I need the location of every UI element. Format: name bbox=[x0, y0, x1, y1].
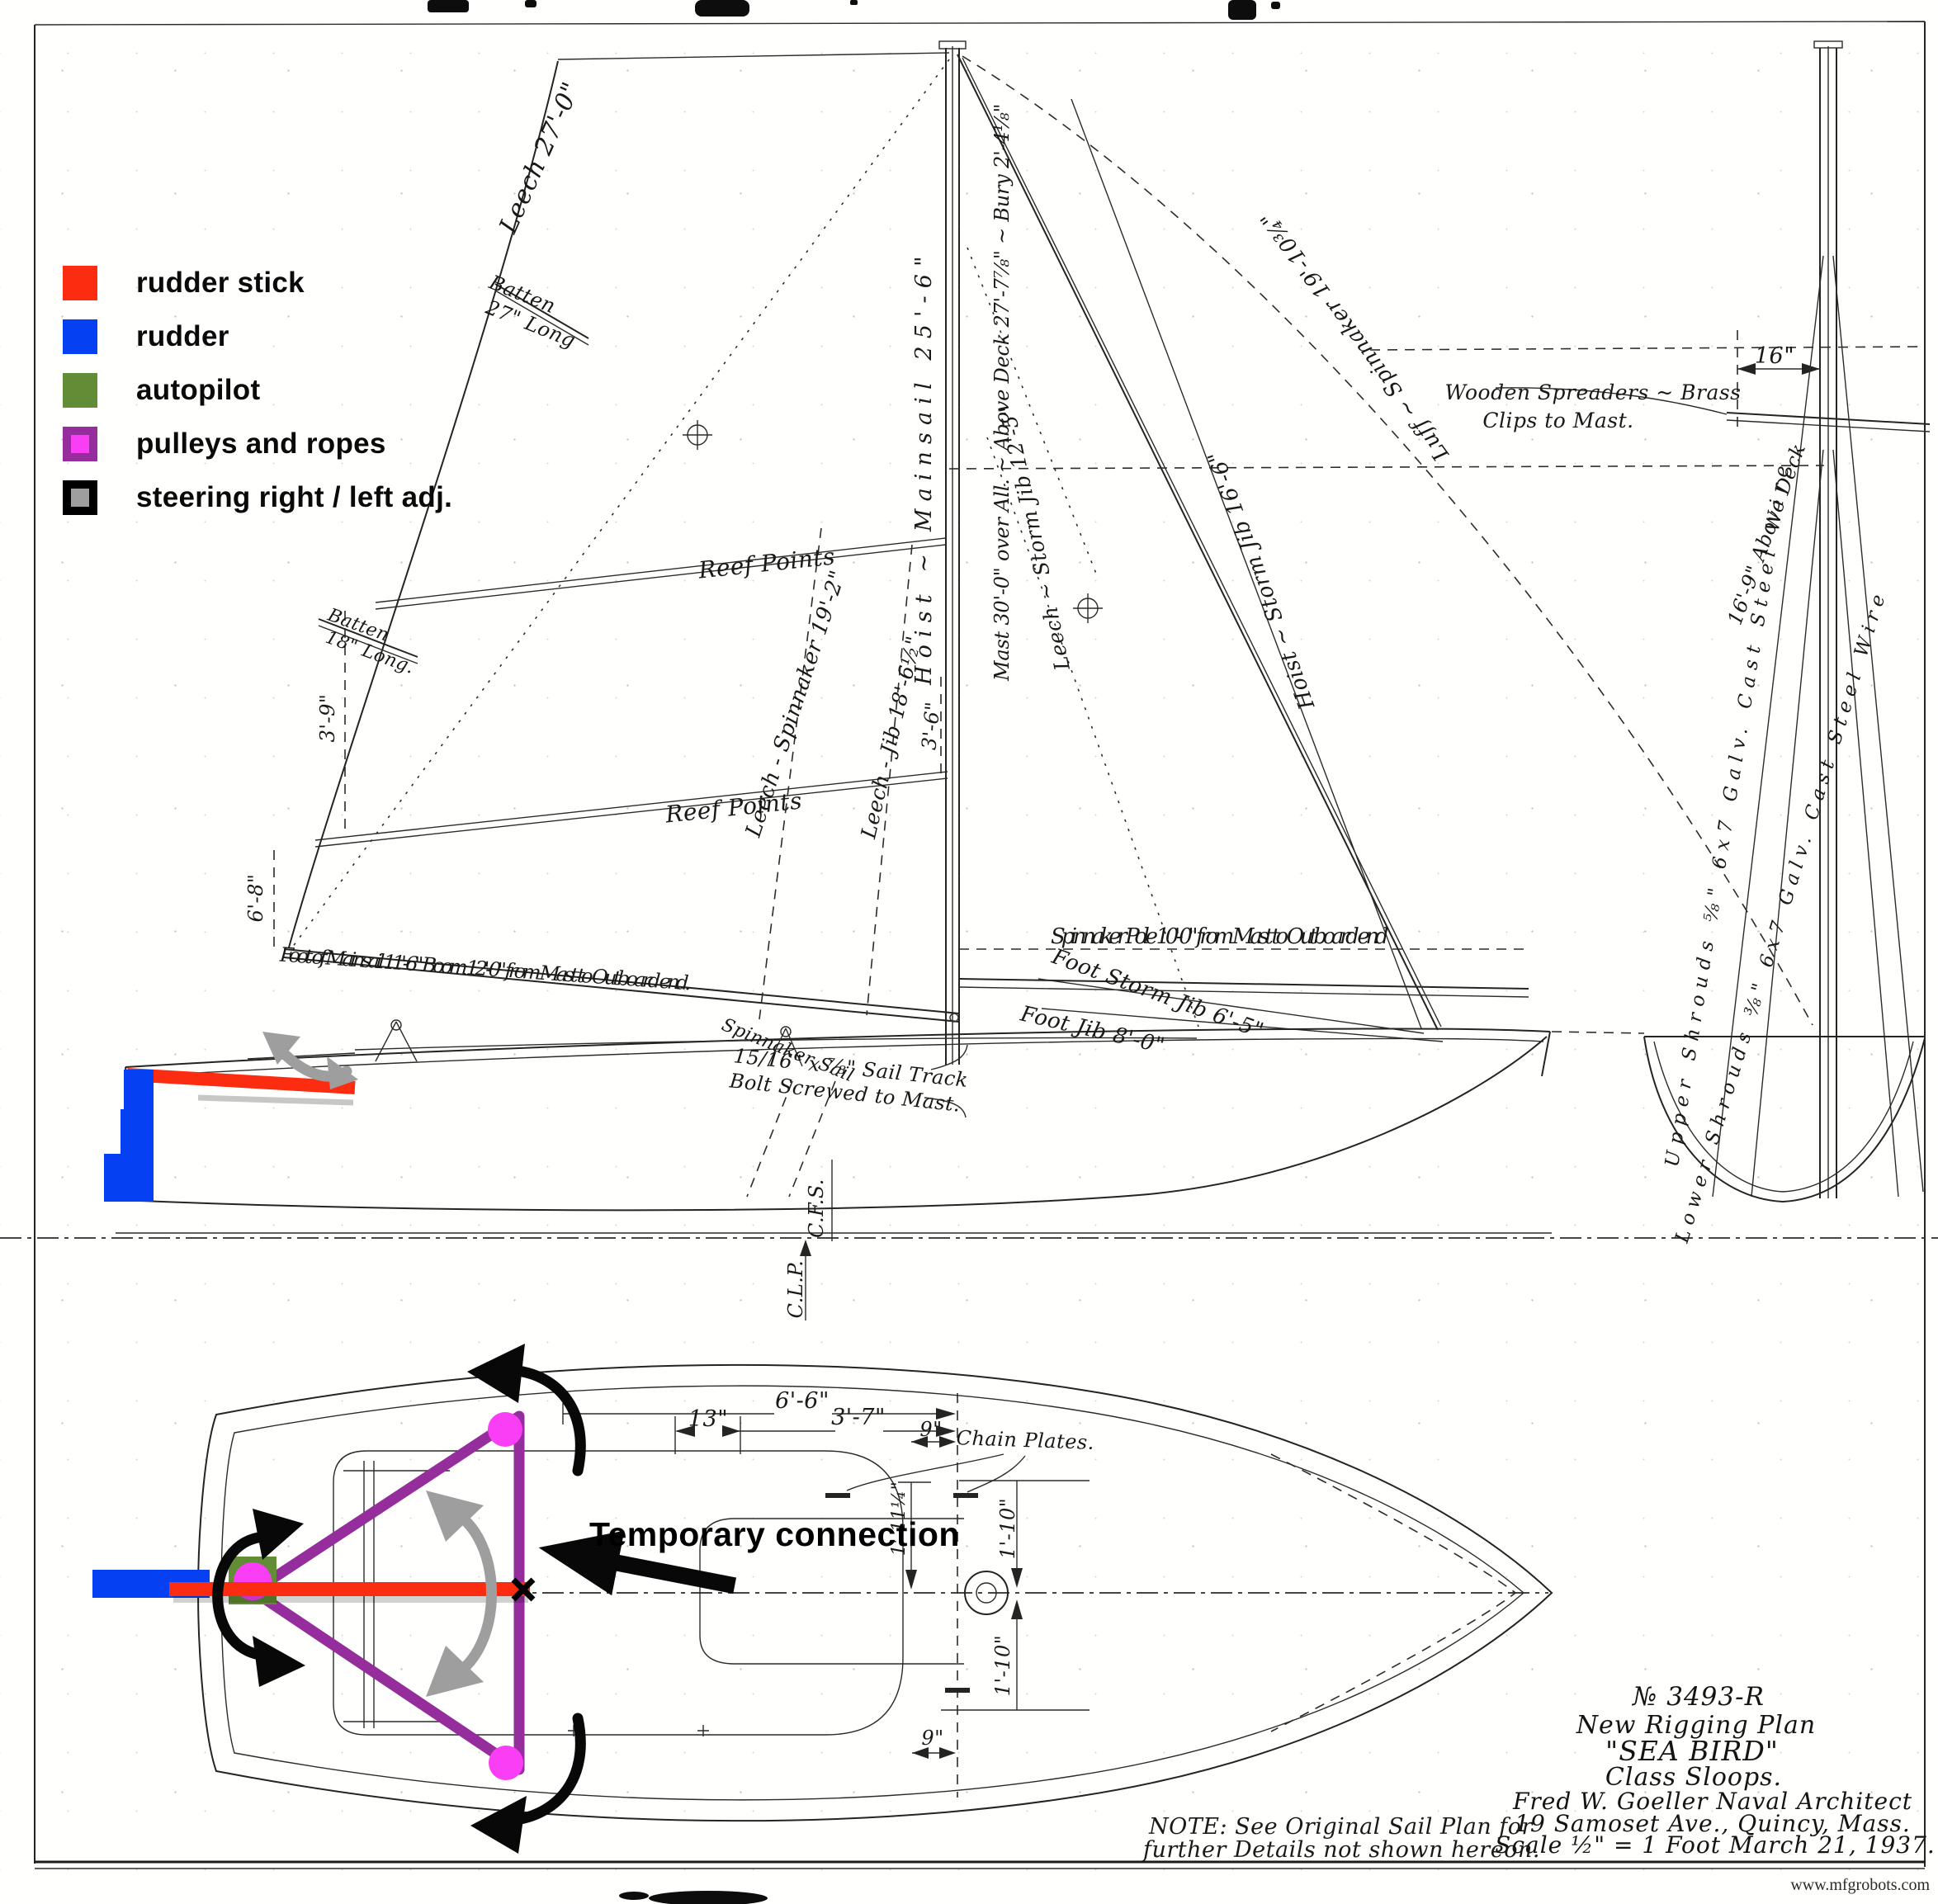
dimension-label: 13" bbox=[688, 1406, 728, 1432]
arrowhead bbox=[467, 1344, 525, 1403]
dimension-label: 9" bbox=[921, 1727, 943, 1750]
dimension-label: 3'-7" bbox=[831, 1405, 886, 1430]
legend-item-steering-adj: steering right / left adj. bbox=[63, 470, 452, 524]
legend-label: rudder stick bbox=[136, 267, 305, 300]
legend-item-pulleys-and-ropes: pulleys and ropes bbox=[63, 417, 452, 470]
dimension-label: 3'-9" bbox=[316, 694, 339, 743]
dimension-label: 1'-10" bbox=[991, 1635, 1014, 1697]
dimension-label: 6'-6" bbox=[775, 1388, 830, 1414]
dimension-label: Spinnaker Pole 10'-0" from Mast to Outbo… bbox=[1051, 924, 1389, 949]
note-block: NOTE: See Original Sail Plan for further… bbox=[1142, 1814, 1540, 1863]
rudder-stick-swatch bbox=[63, 266, 97, 300]
dimension-label: Leech - Jib 18'-6½" bbox=[856, 634, 926, 842]
legend: rudder stick rudder autopilot pulleys an… bbox=[63, 256, 452, 524]
rudder-side bbox=[104, 1070, 154, 1202]
autopilot-swatch bbox=[63, 373, 97, 408]
mast-section-view bbox=[1496, 41, 1930, 1202]
pulley-bottom bbox=[489, 1746, 523, 1780]
legend-label: rudder bbox=[136, 320, 229, 353]
note-line-1: NOTE: See Original Sail Plan for bbox=[1148, 1814, 1534, 1840]
dimension-label: Leech 27'-0" bbox=[494, 78, 586, 239]
arrowhead bbox=[253, 1636, 305, 1687]
pulleys-swatch bbox=[63, 427, 97, 461]
dimension-label: Mast 30'-0" over All. ~ Above Deck 27'-7… bbox=[990, 103, 1014, 682]
arrowhead bbox=[253, 1509, 304, 1560]
scan-artifacts bbox=[428, 0, 1280, 1904]
pulley-top bbox=[488, 1412, 522, 1447]
legend-item-rudder-stick: rudder stick bbox=[63, 256, 452, 309]
dimension-label: C.L.P. bbox=[784, 1260, 807, 1319]
legend-item-autopilot: autopilot bbox=[63, 363, 452, 417]
dimension-label: Chain Plates. bbox=[956, 1426, 1094, 1454]
dimension-label: Foot Jib 8'-0" bbox=[1018, 1001, 1167, 1059]
dimension-label: Foot of Mainsail 11'-6" Boom 12'-0" from… bbox=[278, 943, 692, 995]
dimension-label: 6'-8" bbox=[244, 874, 267, 923]
dimension-label: 3'-6" bbox=[918, 701, 945, 751]
blueprint-page: Leech 27'-0"Batten27" LongReef PointsRee… bbox=[0, 0, 1938, 1904]
stick-shadow bbox=[173, 1596, 528, 1603]
legend-label: steering right / left adj. bbox=[136, 481, 452, 514]
steering-adj-swatch bbox=[63, 480, 97, 515]
note-line-2: further Details not shown hereon. bbox=[1142, 1837, 1540, 1863]
plan-view-overlays bbox=[92, 1344, 741, 1854]
hull-side-view bbox=[0, 1028, 1938, 1321]
legend-item-rudder: rudder bbox=[63, 309, 452, 363]
blueprint-labels: Leech 27'-0"Batten27" LongReef PointsRee… bbox=[244, 78, 1890, 1750]
dimension-label: Luff ~ Spinnaker 19'-10¾" bbox=[1256, 206, 1455, 465]
arrowhead bbox=[470, 1796, 527, 1854]
dimension-label: 1'-10" bbox=[996, 1498, 1019, 1560]
title-block: № 3493-R New Rigging Plan "SEA BIRD" Cla… bbox=[1495, 1682, 1936, 1859]
dimension-label: Hoist ~ Mainsail 25'-6" bbox=[911, 256, 937, 686]
watermark: www.mfgrobots.com bbox=[1790, 1876, 1930, 1894]
dimension-label: 9" bbox=[919, 1418, 942, 1441]
temporary-connection-label: Temporary connection bbox=[589, 1515, 960, 1554]
drawing-number: № 3493-R bbox=[1631, 1682, 1765, 1712]
dimension-label: Reef Points bbox=[697, 542, 837, 583]
stick-shadow bbox=[198, 1098, 353, 1103]
rudder-swatch bbox=[63, 319, 97, 354]
legend-label: pulleys and ropes bbox=[136, 428, 386, 461]
dimension-label: C.F.S. bbox=[805, 1179, 828, 1238]
dimension-label: Wooden Spreaders ~ Brass bbox=[1444, 380, 1741, 404]
legend-label: autopilot bbox=[136, 374, 260, 407]
dimension-label: Clips to Mast. bbox=[1482, 409, 1633, 432]
dimension-label: Reef Points bbox=[664, 787, 804, 828]
dimension-label: 16" bbox=[1755, 343, 1794, 369]
scale-and-date: Scale ½" = 1 Foot March 21, 1937. bbox=[1495, 1831, 1936, 1859]
